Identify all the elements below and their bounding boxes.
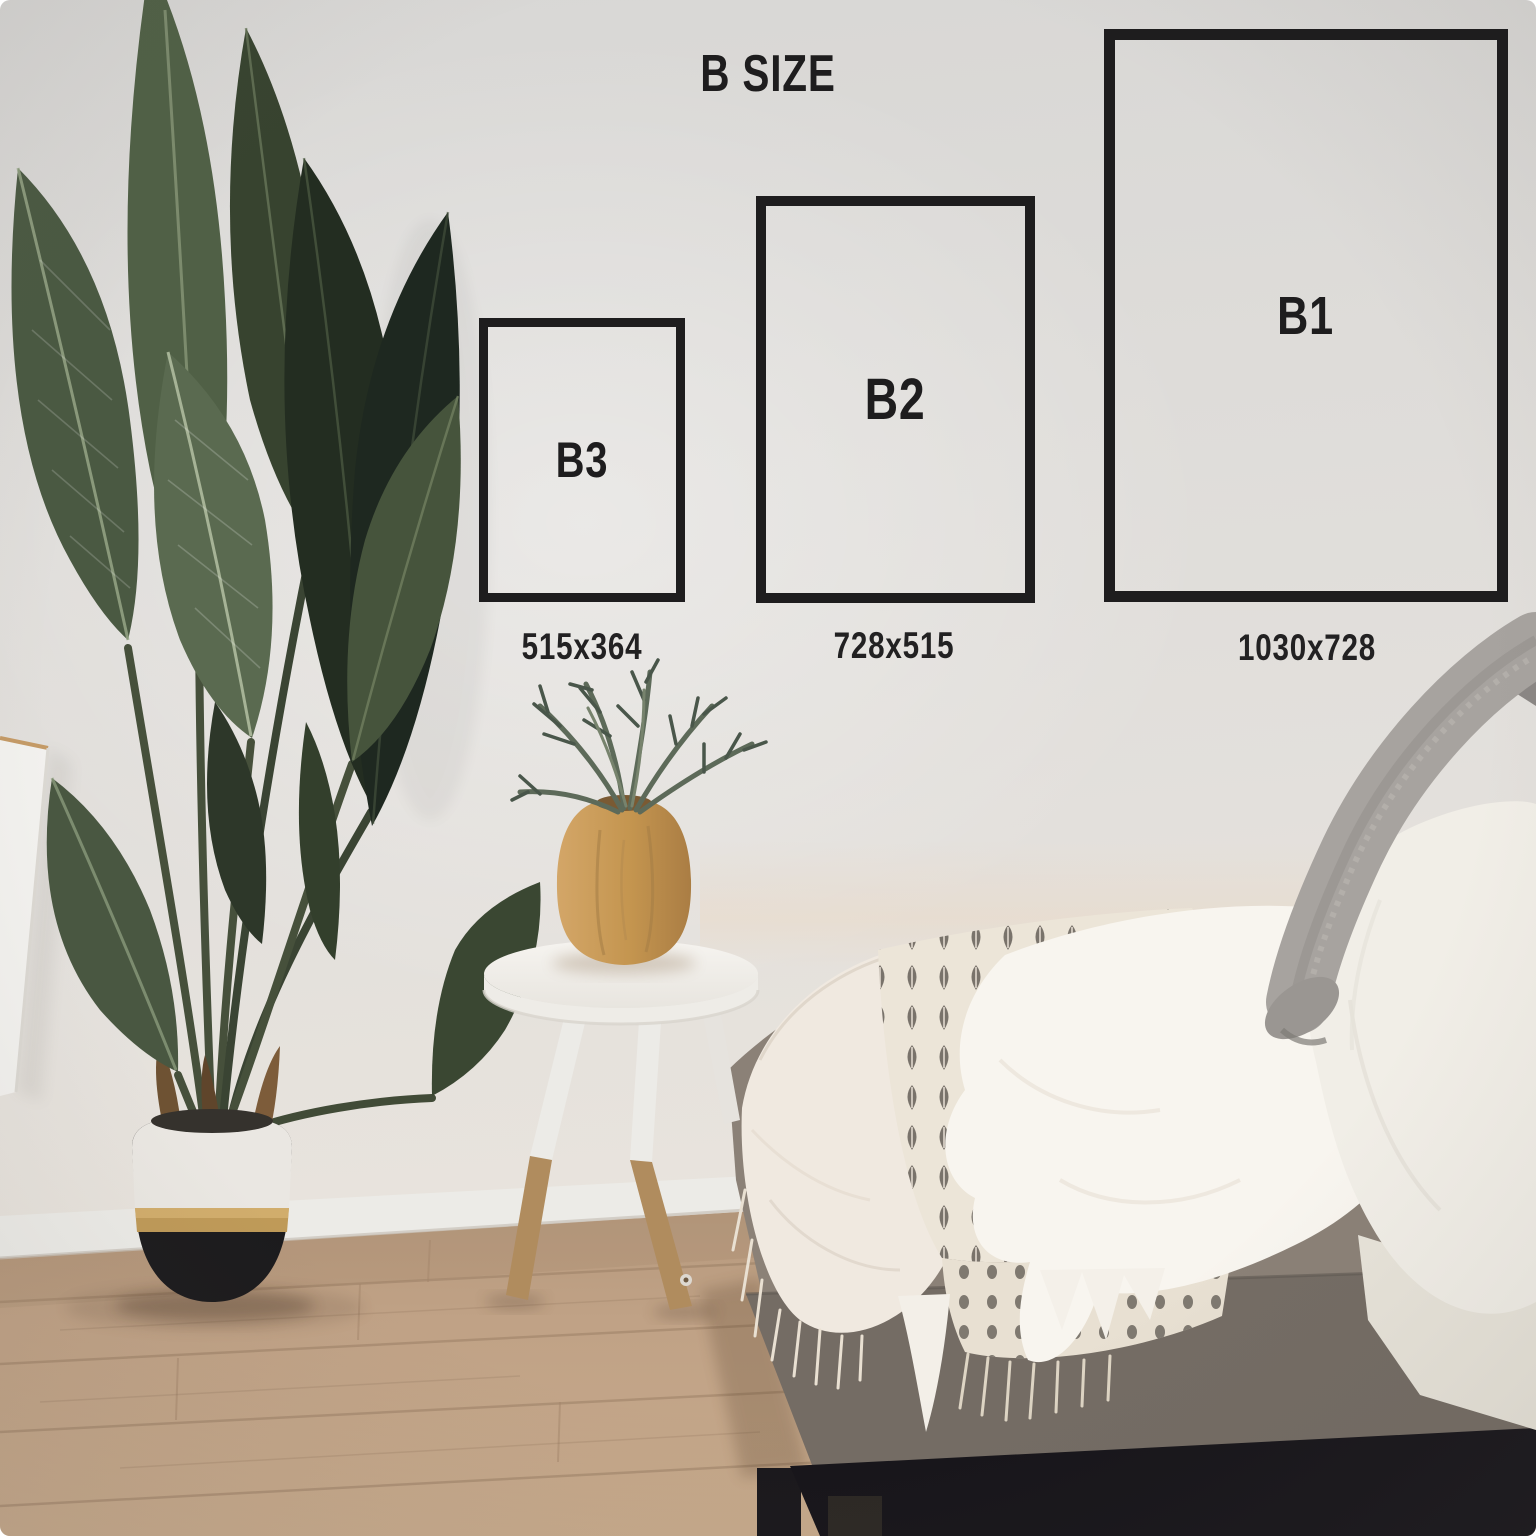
size-frame-b2: B2 (756, 196, 1035, 603)
size-dimensions-b3: 515x364 (522, 626, 643, 668)
size-dimensions-b2: 728x515 (834, 625, 955, 667)
size-dimensions-b1: 1030x728 (1238, 627, 1376, 669)
size-label-b3: B3 (556, 431, 609, 489)
size-chart-title: B SIZE (700, 44, 835, 104)
size-frame-b3: B3 (479, 318, 685, 602)
size-chart: B SIZE B3 B2 B1 515x364 728x515 1030x728 (0, 0, 1536, 1536)
size-label-b1: B1 (1278, 285, 1335, 347)
size-label-b2: B2 (865, 366, 926, 433)
size-frame-b1: B1 (1104, 29, 1508, 602)
room-photo: B SIZE B3 B2 B1 515x364 728x515 1030x728 (0, 0, 1536, 1536)
